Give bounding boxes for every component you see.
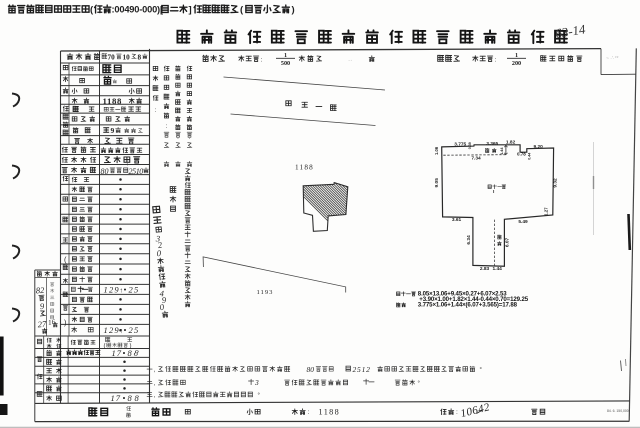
svg-text:1.44: 1.44 [493,266,503,272]
svg-text:0.44: 0.44 [527,153,531,160]
svg-text:3.61: 3.61 [452,217,462,223]
svg-text:17: 17 [111,393,122,403]
svg-text:↑: ↑ [126,162,129,168]
svg-text:9.32: 9.32 [553,178,559,188]
svg-text:0.39: 0.39 [468,142,472,149]
svg-text:3.775: 3.775 [454,142,466,148]
svg-text:17: 17 [112,348,123,358]
svg-text:70: 70 [108,53,116,61]
svg-text:10: 10 [123,53,131,61]
svg-text::00490-000)[: :00490-000)[ [112,5,163,15]
svg-text:129: 129 [104,325,120,335]
svg-text:~ ·'·°*: ~ ·'·°* [606,56,619,62]
svg-text:2510: 2510 [129,167,144,176]
svg-text:3.775×1.06+1.44×(6.07+3.565)=1: 3.775×1.06+1.44×(6.07+3.565)=17.88 [418,301,518,308]
svg-text:3: 3 [254,378,259,387]
svg-text:80: 80 [307,365,315,374]
svg-text:2512: 2512 [353,365,371,374]
svg-text:200: 200 [512,60,521,67]
svg-text:]: ] [189,5,192,16]
svg-text:): ) [292,5,295,16]
svg-text:1.06: 1.06 [434,146,439,155]
svg-text:82: 82 [35,285,45,296]
svg-text:1.44: 1.44 [500,147,504,155]
svg-text:1188: 1188 [295,164,314,172]
svg-text:3.365: 3.365 [486,141,498,147]
svg-text:25: 25 [129,325,140,335]
svg-text:•: • [124,325,127,335]
svg-text:2.83: 2.83 [480,266,490,272]
svg-text:80: 80 [101,167,109,176]
svg-text:•: • [123,348,126,358]
svg-text:7.34: 7.34 [471,155,481,161]
svg-text:1193: 1193 [257,289,274,296]
svg-text:1.27: 1.27 [544,207,549,216]
svg-text:500: 500 [281,60,290,67]
svg-text::: : [261,57,263,64]
svg-text:9.20: 9.20 [534,144,544,150]
svg-text:9.05: 9.05 [434,178,440,188]
svg-text:27: 27 [37,319,47,330]
svg-text::: : [495,57,497,64]
svg-text:1188: 1188 [319,407,341,416]
svg-text:8: 8 [138,53,142,61]
svg-text:84. 6. 150,000: 84. 6. 150,000 [607,409,629,413]
svg-text:1188: 1188 [103,96,123,106]
svg-text:(: ( [104,344,106,350]
svg-text::: : [456,409,458,416]
svg-text:··: ·· [348,57,352,64]
svg-text:↑: ↑ [120,328,124,335]
svg-text:5.49: 5.49 [518,219,528,225]
svg-text:9: 9 [111,126,115,135]
svg-text:1.82: 1.82 [506,139,516,145]
svg-text:6.34: 6.34 [466,235,472,245]
svg-text:6.07: 6.07 [504,238,510,248]
svg-text:↑: ↑ [120,287,124,294]
svg-text:•: • [123,393,126,403]
svg-text:•: • [124,285,127,295]
svg-text::: : [308,409,310,416]
svg-text:0.78: 0.78 [517,151,526,156]
svg-text:25: 25 [129,285,140,295]
svg-text:129: 129 [104,285,120,295]
